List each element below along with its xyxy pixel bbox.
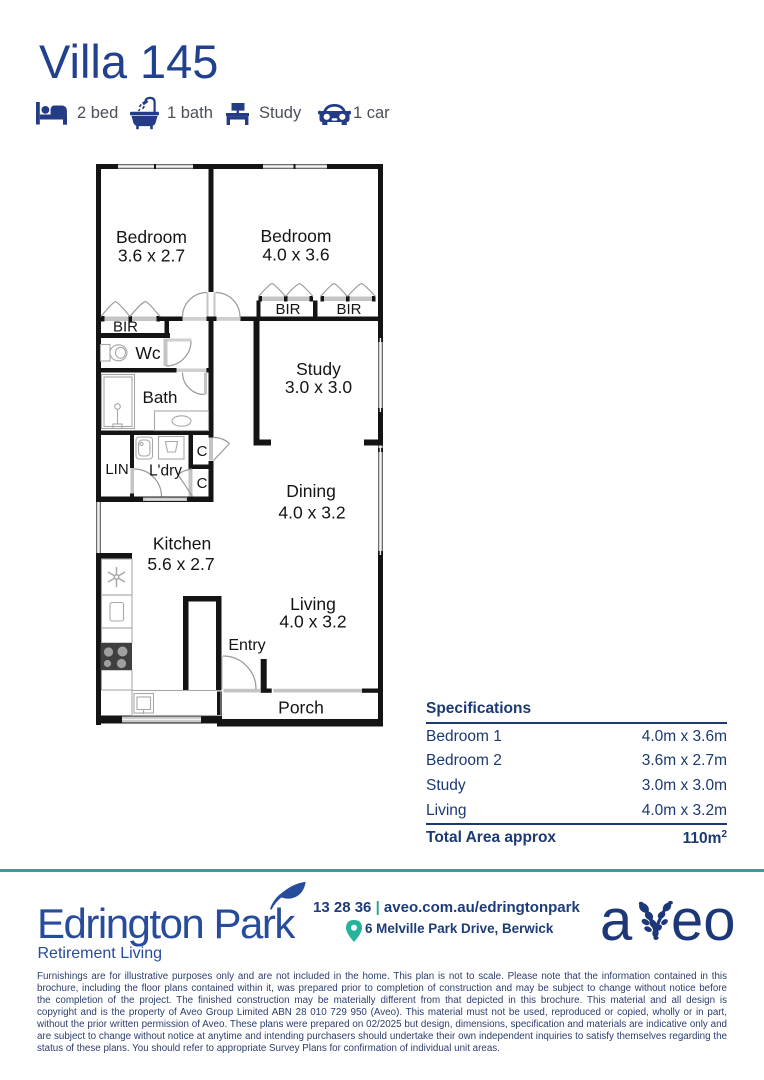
svg-text:Wc: Wc: [135, 343, 161, 363]
svg-text:C: C: [197, 443, 208, 460]
svg-text:BIR: BIR: [336, 301, 361, 318]
svg-text:Dining: Dining: [286, 481, 336, 501]
svg-text:Bedroom: Bedroom: [260, 226, 331, 246]
svg-text:4.0 x 3.2: 4.0 x 3.2: [279, 612, 346, 632]
svg-text:LIN: LIN: [105, 461, 128, 478]
svg-text:BIR: BIR: [275, 301, 300, 318]
svg-text:Kitchen: Kitchen: [153, 534, 211, 554]
svg-text:Bath: Bath: [143, 388, 178, 407]
svg-text:3.0 x 3.0: 3.0 x 3.0: [285, 377, 352, 397]
svg-text:4.0 x 3.2: 4.0 x 3.2: [278, 503, 345, 523]
svg-text:3.6 x 2.7: 3.6 x 2.7: [118, 246, 185, 266]
svg-text:Bedroom: Bedroom: [116, 227, 187, 247]
svg-text:a: a: [600, 888, 633, 950]
svg-text:BIR: BIR: [113, 319, 138, 336]
svg-text:C: C: [197, 475, 208, 492]
svg-text:Entry: Entry: [228, 637, 265, 654]
svg-text:4.0 x 3.6: 4.0 x 3.6: [262, 245, 329, 265]
svg-text:eo: eo: [671, 888, 736, 950]
svg-text:L'dry: L'dry: [149, 463, 182, 480]
svg-text:5.6 x 2.7: 5.6 x 2.7: [147, 554, 214, 574]
svg-text:Study: Study: [296, 359, 341, 379]
svg-text:Porch: Porch: [278, 698, 324, 718]
